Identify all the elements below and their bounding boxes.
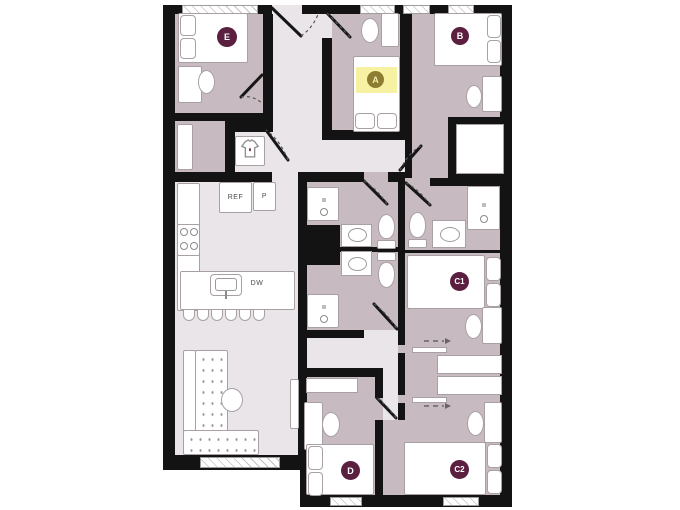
vanity-sink-1 <box>341 224 372 247</box>
sink-basin <box>348 228 367 242</box>
toilet-tank <box>377 240 396 249</box>
desk-c2 <box>484 402 502 443</box>
entry-opening <box>272 5 302 14</box>
window <box>200 457 280 468</box>
desk-chair-d <box>322 412 340 437</box>
shower-head <box>320 208 328 216</box>
wall <box>400 14 412 140</box>
wall <box>298 172 364 182</box>
pillow <box>487 15 501 38</box>
desk-b <box>482 76 502 112</box>
toilet-bowl <box>378 262 395 288</box>
shower-valve <box>322 198 326 202</box>
wall <box>375 368 383 398</box>
pillow <box>308 446 323 470</box>
pillow <box>487 444 502 468</box>
wall <box>375 420 383 495</box>
hall-floor <box>398 140 405 172</box>
desk-chair-c2 <box>467 411 484 436</box>
pillow <box>308 472 323 496</box>
desk-chair-e <box>198 70 215 94</box>
wall <box>430 178 512 186</box>
wall <box>398 172 405 345</box>
closet-c1 <box>437 355 502 374</box>
window <box>403 5 430 14</box>
wall <box>322 38 332 140</box>
desk-c1 <box>482 307 502 344</box>
room-label-e[interactable]: E <box>217 27 237 47</box>
stove <box>177 224 200 256</box>
toilet-3 <box>407 212 428 249</box>
shirt-icon <box>236 137 264 165</box>
burner <box>180 242 188 250</box>
wall <box>225 123 268 132</box>
pillow <box>486 283 501 307</box>
wall <box>398 403 405 420</box>
bed-c1 <box>407 255 485 309</box>
burner <box>190 242 198 250</box>
pantry-label: P <box>253 182 276 211</box>
hall-floor <box>307 338 398 368</box>
shower-2 <box>307 294 339 328</box>
wall <box>398 353 405 395</box>
shower-valve <box>322 305 326 309</box>
toilet-bowl <box>409 212 426 238</box>
room-label-a[interactable]: A <box>367 71 384 88</box>
refrigerator-label: REF <box>219 182 252 213</box>
burner <box>180 228 188 236</box>
sink-basin <box>348 257 367 271</box>
window <box>330 497 362 506</box>
closet-c2 <box>437 376 502 395</box>
sofa-chaise <box>183 430 259 455</box>
pillow <box>487 40 501 63</box>
desk-a <box>381 13 399 47</box>
desk-chair-a <box>361 18 379 43</box>
wardrobe-e <box>177 124 193 170</box>
laundry-closet <box>235 136 265 166</box>
shower-head <box>480 215 488 223</box>
plumbing-wall <box>298 225 340 265</box>
pillow <box>180 15 196 36</box>
toilet-1 <box>376 214 397 250</box>
room-label-c1[interactable]: C1 <box>450 272 469 291</box>
kitchen-sink <box>210 274 242 296</box>
pillow <box>355 113 375 129</box>
pillow <box>486 257 501 281</box>
wall <box>263 100 273 113</box>
closet-shelf <box>412 347 447 353</box>
coffee-table <box>221 388 243 412</box>
closet-b <box>456 124 504 174</box>
door-threshold <box>364 330 398 338</box>
room-label-d[interactable]: D <box>341 461 360 480</box>
toilet-bowl <box>378 214 395 239</box>
wall <box>263 14 273 75</box>
desk-d <box>304 402 323 450</box>
wall <box>300 368 375 377</box>
shower-head <box>320 315 328 323</box>
toilet-2 <box>376 252 397 289</box>
door-threshold <box>364 172 388 182</box>
faucet <box>225 291 227 299</box>
closet-d <box>306 378 358 393</box>
window <box>443 497 479 506</box>
desk-chair-b <box>466 85 482 108</box>
sink-basin <box>215 278 237 291</box>
door-threshold <box>322 14 332 38</box>
room-label-c2[interactable]: C2 <box>450 460 469 479</box>
pillow <box>487 470 502 494</box>
dishwasher-label: DW <box>246 276 268 290</box>
hall-floor <box>298 140 398 172</box>
wall <box>163 113 198 121</box>
slide-threshold <box>398 395 405 403</box>
toilet-tank <box>377 252 396 261</box>
foyer-kitchen-passage <box>272 172 298 182</box>
toilet-tank <box>408 239 427 248</box>
door-threshold <box>375 398 383 420</box>
bed-c2 <box>404 442 486 495</box>
shower-3 <box>467 186 500 230</box>
shower-valve <box>482 203 486 207</box>
wall <box>228 113 273 121</box>
door-threshold <box>405 178 430 186</box>
burner <box>190 228 198 236</box>
vanity-sink-2 <box>341 251 372 276</box>
sink-basin <box>440 227 460 242</box>
desk-chair-c1 <box>465 314 482 339</box>
shower-1 <box>307 187 339 221</box>
floor-plan: E REF P DW A B <box>0 0 680 510</box>
pillow <box>377 113 397 129</box>
slide-threshold <box>398 345 405 353</box>
closet-shelf <box>412 397 447 403</box>
room-label-b[interactable]: B <box>451 27 469 45</box>
hall-floor <box>383 368 398 420</box>
wall <box>163 172 272 182</box>
vanity-sink-3 <box>432 220 466 248</box>
pillow <box>180 38 196 59</box>
tv <box>290 379 299 429</box>
